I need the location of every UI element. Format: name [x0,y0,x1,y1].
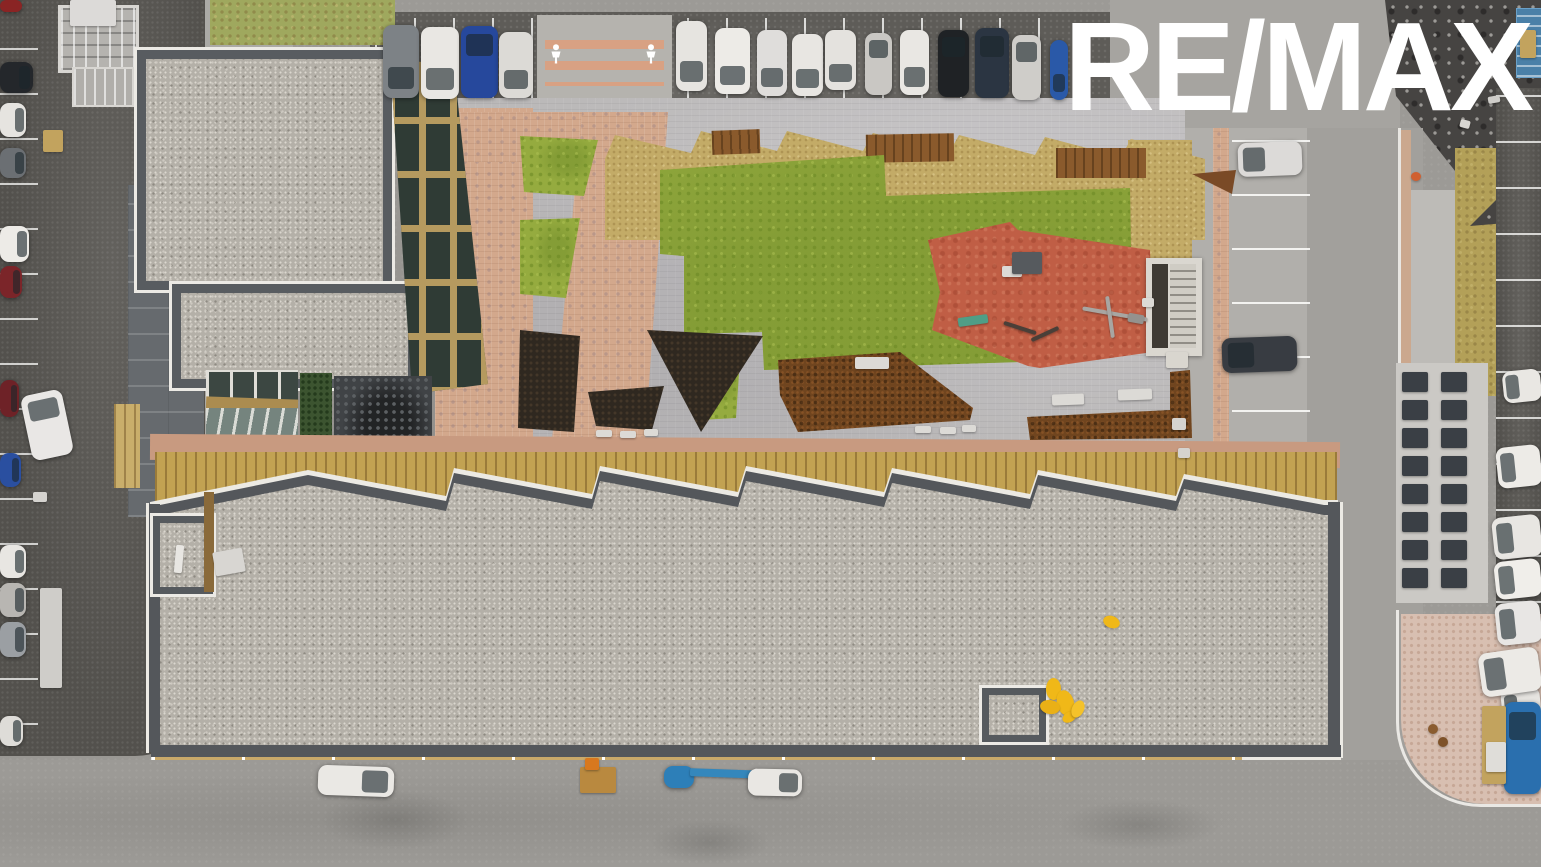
garage-vent-grille [1402,568,1428,588]
car-glass [27,397,61,423]
car-glass [1228,342,1254,368]
remax-logo-watermark: RE/MAX [1064,4,1530,130]
car-glass [1499,452,1517,483]
car [0,622,26,657]
bench [1052,393,1084,405]
car-glass [1509,712,1536,740]
car-glass [15,627,24,652]
car [0,0,22,12]
drain-grate [33,492,47,502]
car [0,148,26,178]
aerial-photo-scene: RE/MAX [0,0,1541,867]
bench [940,427,956,434]
car [1493,558,1541,601]
car-glass [15,152,24,174]
car [0,103,26,137]
bench [1118,388,1152,400]
car [757,30,787,96]
car-glass [869,40,888,59]
garage-vent-grille [1441,400,1467,420]
pickup-truck [1477,646,1541,698]
car-glass [904,67,925,87]
garage-vent-grille [1402,400,1428,420]
garage-vent-grille [1441,484,1467,504]
climbing-block [1012,252,1042,274]
car [421,27,459,99]
white-van [317,765,394,798]
utility-box [1172,418,1186,430]
car-glass [13,270,20,293]
car [0,62,33,93]
pallet-stack [580,767,616,793]
timber-log [1438,737,1448,747]
car-glass [1497,566,1515,595]
spinner-bar [1105,296,1115,338]
bench [1142,298,1154,307]
car [1237,141,1302,177]
car [865,33,892,95]
car-glass [19,66,30,88]
car-glass [388,67,414,89]
car-glass [466,34,493,56]
garage-vent-grille [1402,540,1428,560]
garage-vent-grille [1402,428,1428,448]
garage-vent-grille [1402,372,1428,392]
car [676,21,707,91]
car-glass [1498,608,1516,640]
car [499,32,533,98]
garage-vent-grille [1441,512,1467,532]
spinner-seat [1127,313,1144,325]
car-glass [761,68,783,88]
car-glass [504,70,529,90]
van [20,388,75,461]
car [1495,444,1541,489]
car [938,30,969,97]
car [0,545,26,578]
car [0,453,21,487]
car-glass [1016,42,1037,62]
car-glass [779,773,798,793]
bench [915,426,931,433]
car [1494,600,1541,646]
bench [596,430,612,437]
garage-vent-grille [1441,540,1467,560]
car-glass [1495,522,1514,554]
garage-vent-grille [1441,428,1467,448]
bench [620,431,636,438]
car [1221,336,1297,374]
balance-bar [1003,321,1037,335]
utility-box [1178,448,1190,458]
car [975,28,1009,98]
car [1501,368,1541,404]
car-glass [362,770,389,793]
car [792,34,823,96]
bench [644,429,658,436]
bench [855,357,889,369]
timber-log [1428,724,1438,734]
car [0,380,19,417]
roof-material-sheet [212,548,246,577]
blue-truck [1504,702,1541,794]
car [1012,35,1041,100]
skylight-tube [174,545,184,574]
car [383,25,419,98]
car-glass [15,108,24,133]
garage-vent-grille [1441,372,1467,392]
car-glass [17,231,27,257]
car-glass [15,550,24,574]
car [0,716,23,746]
white-van [748,769,802,797]
car-glass [829,64,851,82]
stair-landing-box [1166,352,1188,368]
car [825,30,856,90]
car-glass [426,68,453,90]
garage-vent-grille [1441,568,1467,588]
bench [962,425,976,432]
garage-vent-grille [1402,484,1428,504]
car-glass [1483,657,1508,691]
car-glass [1505,375,1520,399]
white-sheet [70,0,116,26]
car-glass [720,66,745,86]
car [1491,514,1541,561]
car-glass [11,385,17,412]
yellow-material [1101,613,1121,630]
car [461,26,498,98]
car [0,583,26,617]
garage-vent-grille [1441,456,1467,476]
garage-vent-grille [1402,512,1428,532]
garage-vent-grille [1402,456,1428,476]
forklift [585,758,599,770]
plank-pile [40,588,62,688]
car-glass [15,588,24,613]
car-glass [942,37,964,57]
car [900,30,929,95]
car [715,28,750,94]
car [0,226,29,262]
car-glass [1243,147,1266,172]
teal-bench [958,314,989,327]
car-glass [980,36,1005,57]
car-glass [796,69,818,88]
car [0,266,22,298]
car-glass [680,61,702,82]
car-glass [12,458,19,483]
car-glass [13,720,21,742]
white-sheet-stack [1486,742,1506,772]
orange-marker [1411,172,1421,181]
wood-pallet [43,130,63,152]
